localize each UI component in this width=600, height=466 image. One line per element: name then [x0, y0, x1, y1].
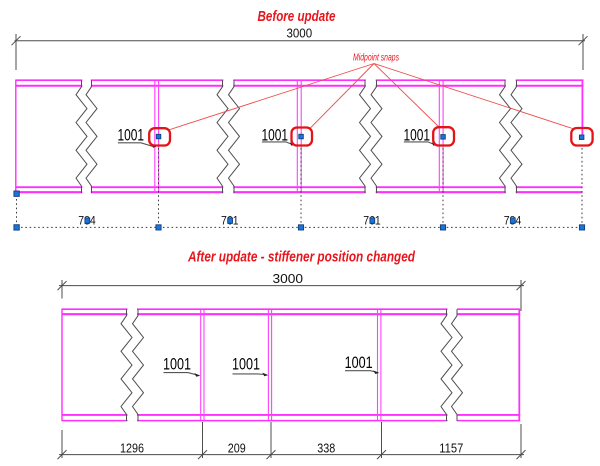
- svg-text:1001: 1001: [345, 354, 373, 372]
- svg-text:1296: 1296: [120, 441, 144, 455]
- svg-text:Midpoint snaps: Midpoint snaps: [353, 53, 399, 64]
- svg-text:3000: 3000: [273, 271, 304, 286]
- svg-text:1001: 1001: [163, 356, 191, 374]
- svg-text:1001: 1001: [232, 356, 260, 374]
- svg-text:Before update: Before update: [258, 8, 336, 25]
- svg-text:209: 209: [228, 441, 246, 455]
- svg-text:1001: 1001: [118, 127, 145, 145]
- svg-text:338: 338: [317, 441, 335, 455]
- svg-text:3000: 3000: [286, 26, 312, 41]
- svg-text:1157: 1157: [439, 441, 463, 455]
- svg-text:After update - stiffener posit: After update - stiffener position change…: [187, 249, 415, 266]
